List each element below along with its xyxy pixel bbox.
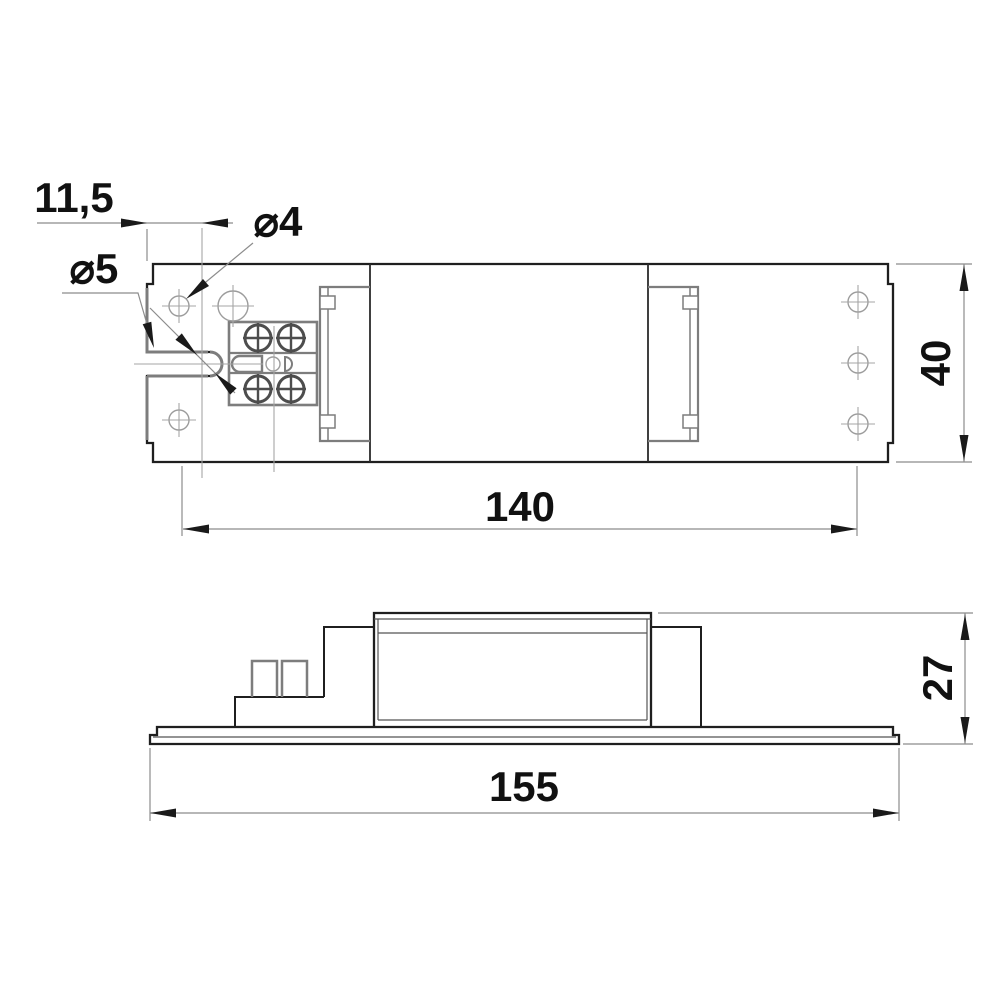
dim-label-40: 40 bbox=[912, 340, 959, 387]
side-view bbox=[150, 613, 899, 744]
terminal-tab-2 bbox=[282, 661, 307, 697]
technical-drawing: 11,5 ⌀4 ⌀5 140 40 15 bbox=[0, 0, 1000, 1000]
dim-label-140: 140 bbox=[485, 483, 555, 530]
mounting-holes-left bbox=[162, 285, 254, 437]
terminal-tab-1 bbox=[252, 661, 277, 697]
d-shaped-hole bbox=[285, 357, 292, 371]
terminal-platform bbox=[235, 697, 324, 727]
mounting-holes-right bbox=[841, 285, 875, 441]
dimension-hole-spacing: 140 bbox=[182, 466, 857, 536]
terminal-center-hole bbox=[266, 357, 280, 371]
dim-label-27: 27 bbox=[914, 655, 961, 702]
central-body bbox=[374, 613, 651, 727]
left-cover-bracket bbox=[320, 287, 370, 441]
left-cover-block bbox=[324, 627, 374, 697]
dim-label-11-5: 11,5 bbox=[34, 174, 113, 221]
top-view bbox=[134, 228, 893, 478]
dim-label-d4: ⌀4 bbox=[254, 198, 303, 245]
dimension-body-width: 40 bbox=[896, 264, 972, 462]
dimension-body-height: 27 bbox=[658, 613, 973, 744]
dimension-hole-diameter: ⌀4 bbox=[186, 198, 303, 299]
technical-drawing-page: 11,5 ⌀4 ⌀5 140 40 15 bbox=[0, 0, 1000, 1000]
top-view-body-outline bbox=[147, 264, 893, 462]
dimension-slot-diameter: ⌀5 bbox=[62, 245, 237, 395]
base-plate bbox=[150, 727, 899, 744]
dimension-base-length: 155 bbox=[150, 748, 899, 821]
dim-label-d5: ⌀5 bbox=[70, 245, 119, 292]
right-cover-bracket bbox=[648, 287, 698, 441]
right-cover-block bbox=[651, 627, 701, 727]
dimension-offset-left: 11,5 bbox=[34, 174, 233, 261]
dim-label-155: 155 bbox=[489, 763, 559, 810]
